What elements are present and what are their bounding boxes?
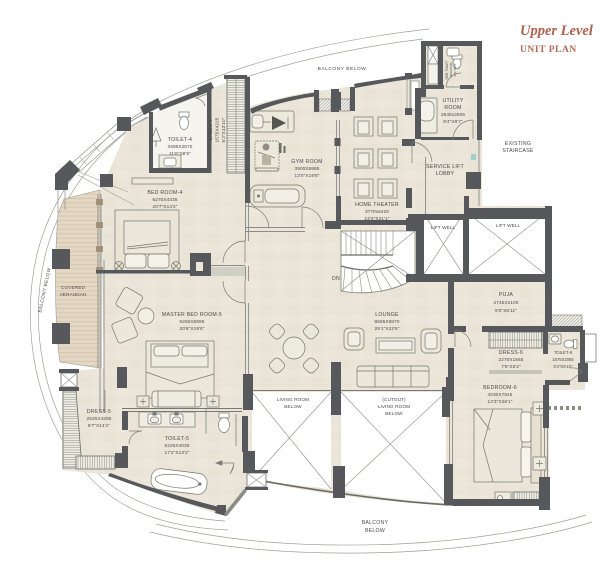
svg-text:2540x2505: 2540x2505 [441, 112, 465, 117]
svg-text:TOILET-4: TOILET-4 [168, 137, 192, 143]
svg-text:BELOW: BELOW [365, 528, 385, 534]
svg-text:ROOM: ROOM [444, 105, 461, 111]
svg-text:13'0"X19'8": 13'0"X19'8" [295, 173, 320, 178]
svg-text:3770x6420: 3770x6420 [365, 209, 389, 214]
svg-text:5225X4035: 5225X4035 [165, 443, 190, 448]
svg-text:COVERED: COVERED [61, 285, 85, 290]
svg-text:8665X6870: 8665X6870 [375, 319, 400, 324]
svg-text:BEDROOM-6: BEDROOM-6 [483, 385, 517, 391]
svg-text:29'1"X22'6": 29'1"X22'6" [375, 326, 400, 331]
svg-text:STAIRCASE: STAIRCASE [502, 148, 534, 154]
svg-text:DRESS-6: DRESS-6 [499, 350, 523, 356]
svg-text:UTILITY: UTILITY [442, 98, 463, 104]
svg-text:20'6"X19'8": 20'6"X19'8" [180, 326, 205, 331]
svg-text:BELOW: BELOW [385, 411, 403, 416]
svg-text:DN: DN [332, 276, 340, 282]
svg-text:LIVING ROOM: LIVING ROOM [378, 404, 410, 409]
svg-text:TOILET-5: TOILET-5 [165, 436, 189, 442]
svg-text:LIFT WELL: LIFT WELL [496, 223, 521, 228]
svg-text:20'7"X14'2": 20'7"X14'2" [153, 204, 178, 209]
svg-text:5'2"X13'10": 5'2"X13'10" [221, 117, 226, 142]
svg-text:6270X4335: 6270X4335 [153, 197, 178, 202]
svg-text:13'3"X26'1": 13'3"X26'1" [488, 399, 513, 404]
svg-text:2270X1565: 2270X1565 [499, 357, 524, 362]
svg-text:3900X5985: 3900X5985 [295, 166, 320, 171]
svg-text:9'0"X6'11": 9'0"X6'11" [495, 308, 517, 313]
svg-text:LOBBY: LOBBY [436, 171, 455, 177]
svg-text:(CUTOUT): (CUTOUT) [382, 397, 406, 402]
svg-text:1575X4225: 1575X4225 [215, 117, 220, 142]
svg-text:6260X5995: 6260X5995 [180, 319, 205, 324]
svg-text:8'7"X14'1": 8'7"X14'1" [88, 423, 111, 428]
svg-text:BALCONY: BALCONY [362, 520, 389, 526]
svg-text:8'4"X8'7": 8'4"X8'7" [443, 119, 463, 124]
svg-text:HOME THEATER: HOME THEATER [355, 202, 399, 208]
svg-text:7'5"X5'2": 7'5"X5'2" [501, 364, 521, 369]
svg-text:BELOW: BELOW [284, 404, 302, 409]
svg-text:SERVICE LIFT: SERVICE LIFT [426, 164, 464, 170]
svg-text:GYM ROOM: GYM ROOM [291, 159, 322, 165]
svg-text:TOILET-6: TOILET-6 [554, 350, 573, 355]
svg-text:4'11"X6'8": 4'11"X6'8" [453, 63, 457, 77]
svg-text:UNIT PLAN: UNIT PLAN [520, 45, 577, 55]
svg-text:11'6"X8'5": 11'6"X8'5" [169, 151, 191, 156]
svg-text:5'4"X6'10": 5'4"X6'10" [553, 364, 573, 369]
svg-text:Upper Level: Upper Level [520, 23, 593, 39]
svg-text:BALCONY BELOW: BALCONY BELOW [318, 66, 367, 72]
svg-text:2745X2100: 2745X2100 [494, 300, 519, 305]
svg-text:PUJA: PUJA [499, 292, 514, 298]
svg-text:MASTER BED ROOM-5: MASTER BED ROOM-5 [162, 312, 222, 318]
svg-text:EXISTING: EXISTING [505, 141, 531, 147]
svg-text:2625X4295: 2625X4295 [87, 416, 112, 421]
svg-text:4030X7945: 4030X7945 [488, 392, 513, 397]
svg-text:LIFT WELL: LIFT WELL [431, 225, 456, 230]
svg-text:LIVING ROOM: LIVING ROOM [277, 397, 309, 402]
svg-text:VERANDAH: VERANDAH [60, 292, 87, 297]
svg-text:1675X2085: 1675X2085 [552, 357, 574, 362]
svg-text:17'2"X13'2": 17'2"X13'2" [165, 450, 190, 455]
svg-text:LOUNGE: LOUNGE [375, 312, 399, 318]
svg-text:12'4"X21'1": 12'4"X21'1" [365, 216, 390, 221]
svg-text:DRESS-5: DRESS-5 [87, 409, 111, 415]
svg-text:BED ROOM-4: BED ROOM-4 [147, 190, 182, 196]
svg-text:DRESS-4: DRESS-4 [208, 119, 213, 140]
svg-text:3495X2570: 3495X2570 [168, 144, 193, 149]
